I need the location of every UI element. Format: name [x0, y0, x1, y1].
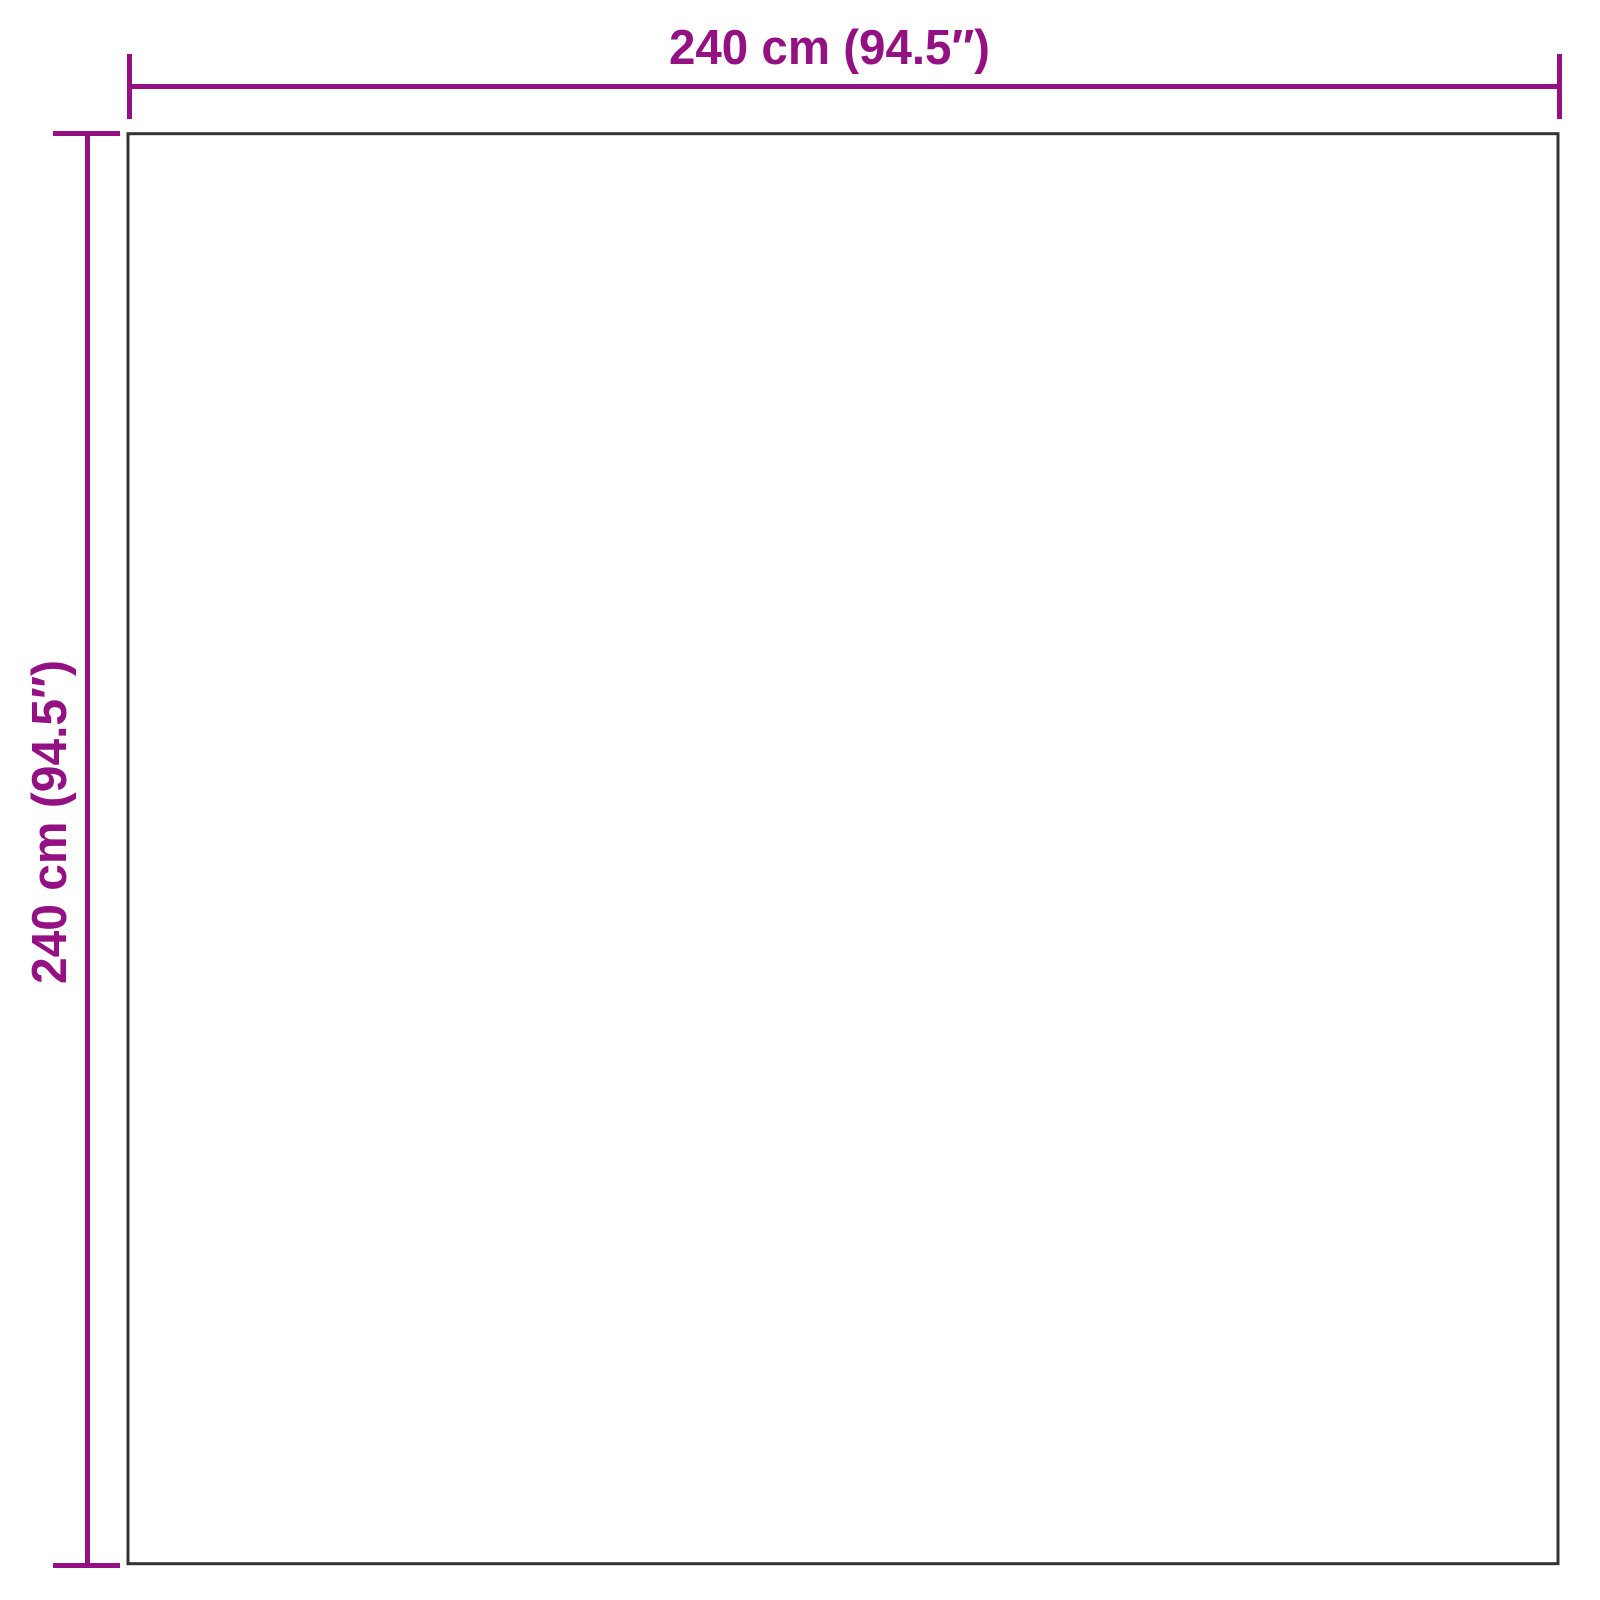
- svg-text:240 cm (94.5″): 240 cm (94.5″): [23, 660, 77, 984]
- svg-text:240 cm (94.5″): 240 cm (94.5″): [669, 21, 990, 75]
